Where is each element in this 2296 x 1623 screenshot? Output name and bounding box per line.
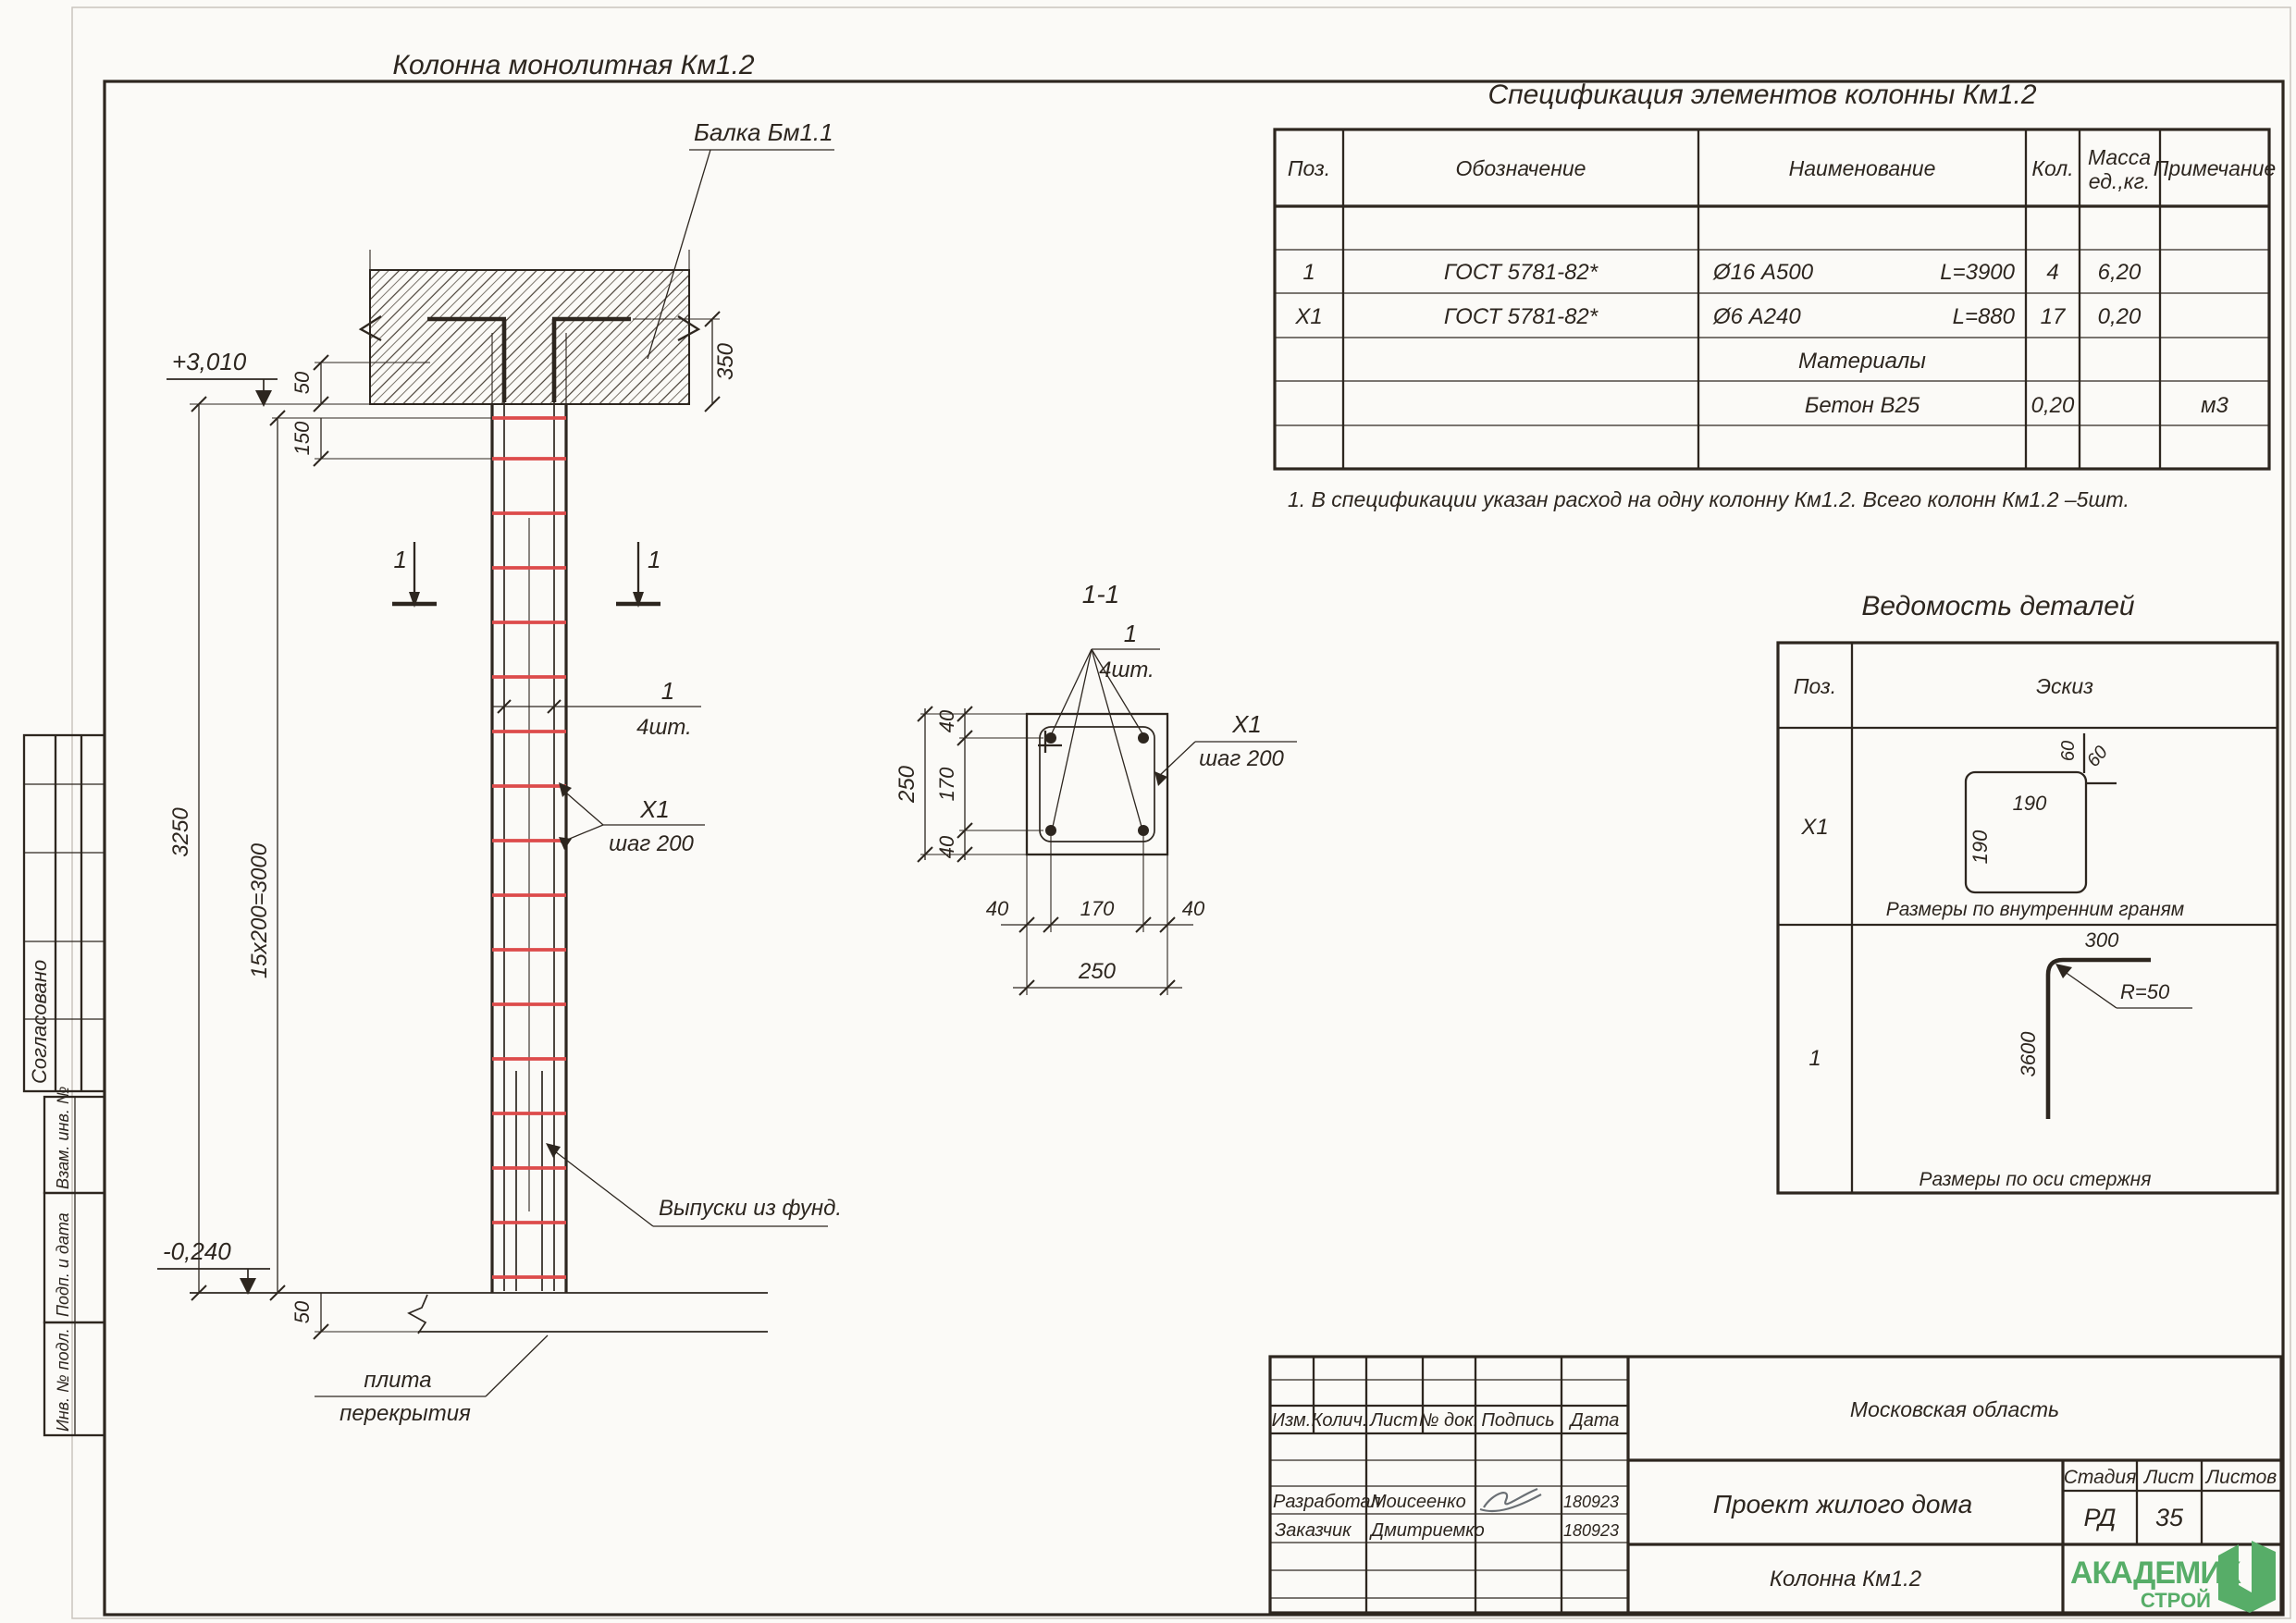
tb-row-customer: Заказчик Дмитриемко 180923 — [1275, 1520, 1619, 1541]
tb-col-list: Лист — [1368, 1410, 1418, 1431]
svg-text:6,20: 6,20 — [2098, 260, 2142, 285]
outlets-label: Выпуски из фунд. — [546, 1143, 842, 1226]
spec-col-mass-1: Масса — [2088, 145, 2151, 169]
signature — [1480, 1489, 1541, 1511]
dim-40-v-top: 40 — [935, 709, 958, 732]
sketch-stirrup: 190 190 60 60 — [1966, 733, 2117, 892]
level-top: +3,010 — [172, 348, 247, 375]
svg-text:ГОСТ 5781-82*: ГОСТ 5781-82* — [1444, 260, 1599, 285]
side-label-replace-inv: Взам. инв. № — [54, 1087, 72, 1189]
front-view-title: Колонна монолитная Км1.2 — [392, 50, 755, 80]
tb-listov-label: Листов — [2204, 1467, 2277, 1488]
section-stirrup — [1040, 727, 1154, 842]
svg-text:60: 60 — [2058, 741, 2079, 761]
title-block: Изм. Колич. Лист № док. Подпись Дата Раз… — [1270, 1357, 2281, 1613]
slab-label: плита перекрытия — [315, 1335, 548, 1426]
blueprint-canvas: Согласовано Взам. инв. № Подп. и дата Ин… — [0, 0, 2296, 1623]
tb-col-date: Дата — [1569, 1410, 1620, 1431]
svg-text:Х1: Х1 — [639, 795, 670, 823]
tb-list-label: Лист — [2142, 1467, 2194, 1488]
dim-250-v: 250 — [895, 765, 920, 804]
dim-stirrup-step: 15x200=3000 — [247, 842, 272, 978]
svg-text:60: 60 — [2083, 743, 2112, 771]
spec-row-2: Х1 ГОСТ 5781-82* Ø6 А240 L=880 17 0,20 — [1294, 304, 2142, 329]
spec-col-mass-2: ед.,кг. — [2089, 169, 2151, 193]
svg-text:L=880: L=880 — [1953, 304, 2016, 329]
svg-text:17: 17 — [2041, 304, 2067, 329]
dim-250-h: 250 — [1078, 959, 1117, 984]
tb-row-developer: Разработал Моисеенко 180923 — [1273, 1489, 1619, 1512]
svg-text:Х1: Х1 — [1294, 304, 1322, 329]
svg-text:Ø6 А240: Ø6 А240 — [1712, 304, 1801, 329]
svg-text:0,20: 0,20 — [2031, 393, 2075, 418]
dim-40-v-bot: 40 — [935, 835, 958, 858]
tb-col-sign: Подпись — [1481, 1410, 1554, 1431]
details-table: Ведомость деталей Поз. Эскиз Х1 190 190 … — [1778, 591, 2277, 1193]
svg-text:Ø16 А500: Ø16 А500 — [1712, 260, 1814, 285]
side-strip: Согласовано Взам. инв. № Подп. и дата Ин… — [24, 735, 105, 1435]
svg-text:4: 4 — [2046, 260, 2058, 285]
company-logo: АКАДЕМИК СТРОЙ — [2070, 1541, 2276, 1613]
svg-text:R=50: R=50 — [2120, 980, 2170, 1003]
svg-text:L=3900: L=3900 — [1940, 260, 2015, 285]
spec-table: Спецификация элементов колонны Км1.2 Поз… — [1275, 80, 2276, 511]
details-row-1-pos: 1 — [1808, 1046, 1821, 1071]
section-view: 1-1 1 4шт. Х1 шаг 200 250 40 170 40 — [895, 580, 1297, 995]
stirrup-callout-front: Х1 шаг 200 — [559, 782, 705, 856]
svg-text:1: 1 — [1124, 620, 1137, 647]
svg-text:1: 1 — [1302, 260, 1315, 285]
spec-row-concrete: Бетон В25 0,20 м3 — [1805, 393, 2229, 418]
side-label-sign-date: Подп. и дата — [54, 1212, 72, 1317]
dim-170-v: 170 — [935, 767, 958, 801]
svg-text:Выпуски из фунд.: Выпуски из фунд. — [659, 1196, 842, 1221]
beam-section — [370, 270, 689, 404]
svg-text:180923: 180923 — [1563, 1493, 1619, 1511]
svg-text:180923: 180923 — [1563, 1521, 1619, 1540]
logo-text-bottom: СТРОЙ — [2141, 1589, 2211, 1612]
stirrup-callout-section: Х1 шаг 200 — [1154, 710, 1297, 786]
sketch-bent-bar: 300 R=50 3600 — [2017, 928, 2192, 1119]
front-view: Колонна монолитная Км1.2 Балка Бм1.1 — [157, 50, 842, 1426]
svg-text:перекрытия: перекрытия — [339, 1401, 471, 1426]
svg-text:Разработал: Разработал — [1273, 1492, 1381, 1512]
svg-text:Бетон В25: Бетон В25 — [1805, 393, 1920, 418]
svg-text:1: 1 — [648, 546, 660, 573]
drawing-sheet: Согласовано Взам. инв. № Подп. и дата Ин… — [0, 0, 2296, 1623]
svg-text:Моисеенко: Моисеенко — [1371, 1492, 1466, 1512]
section-title: 1-1 — [1082, 580, 1119, 609]
svg-text:1: 1 — [394, 546, 407, 573]
details-row-x1-caption: Размеры по внутренним граням — [1886, 899, 2184, 920]
spec-row-1: 1 ГОСТ 5781-82* Ø16 А500 L=3900 4 6,20 — [1302, 260, 2142, 285]
logo-house-icon — [2218, 1541, 2276, 1613]
tb-col-kol: Колич. — [1312, 1410, 1368, 1431]
dim-40-h-right: 40 — [1182, 897, 1205, 920]
svg-text:плита: плита — [364, 1368, 431, 1393]
dim-170-h: 170 — [1080, 897, 1115, 920]
beam-label: Балка Бм1.1 — [694, 118, 833, 146]
dim-50-top: 50 — [290, 371, 314, 394]
tb-object: Колонна Км1.2 — [1770, 1567, 1921, 1592]
svg-text:0,20: 0,20 — [2098, 304, 2142, 329]
spec-note: 1. В спецификации указан расход на одну … — [1288, 487, 2129, 511]
svg-text:4шт.: 4шт. — [1099, 658, 1154, 682]
tb-col-izm: Изм. — [1272, 1410, 1312, 1431]
svg-text:шаг 200: шаг 200 — [609, 831, 694, 856]
svg-text:м3: м3 — [2201, 393, 2228, 418]
side-label-approved: Согласовано — [28, 960, 51, 1084]
tb-stage-label: Стадия — [2064, 1467, 2137, 1488]
dim-50-bottom: 50 — [290, 1300, 314, 1323]
spec-col-note: Примечание — [2154, 156, 2276, 180]
svg-text:Заказчик: Заказчик — [1275, 1520, 1352, 1541]
svg-text:1: 1 — [661, 677, 674, 705]
tb-stage-value: РД — [2084, 1504, 2117, 1531]
tb-region: Московская область — [1850, 1397, 2059, 1421]
details-col-sketch: Эскиз — [2036, 674, 2093, 698]
details-col-pos: Поз. — [1794, 674, 1836, 698]
bar-callout-section: 1 4шт. — [1051, 620, 1160, 827]
dim-40-h-left: 40 — [986, 897, 1009, 920]
spec-col-pos: Поз. — [1288, 156, 1330, 180]
details-row-x1-pos: Х1 — [1800, 815, 1828, 840]
svg-text:300: 300 — [2085, 928, 2119, 952]
svg-text:шаг 200: шаг 200 — [1199, 746, 1284, 771]
spec-col-qty: Кол. — [2031, 156, 2073, 180]
spec-table-title: Спецификация элементов колонны Км1.2 — [1487, 80, 2036, 110]
dim-total-height: 3250 — [168, 807, 193, 857]
svg-text:Х1: Х1 — [1231, 710, 1262, 738]
corner-bar — [1045, 825, 1056, 836]
svg-text:3600: 3600 — [2017, 1031, 2040, 1077]
corner-bar — [1138, 825, 1149, 836]
tb-sheet-value: 35 — [2155, 1504, 2184, 1531]
slab-break — [409, 1295, 427, 1334]
spec-col-desig: Обозначение — [1456, 156, 1586, 180]
logo-text-top: АКАДЕМИК — [2070, 1555, 2241, 1591]
section-mark-right: 1 — [616, 542, 660, 608]
side-label-inv-orig: Инв. № подл. — [54, 1328, 72, 1432]
svg-text:Дмитриемко: Дмитриемко — [1369, 1520, 1485, 1541]
section-mark-left: 1 — [392, 542, 437, 608]
details-title: Ведомость деталей — [1861, 591, 2135, 621]
level-bottom: -0,240 — [163, 1237, 231, 1265]
svg-text:4шт.: 4шт. — [636, 715, 692, 740]
spec-row-materials: Материалы — [1798, 349, 1926, 374]
spec-col-name: Наименование — [1789, 156, 1936, 180]
svg-text:190: 190 — [2013, 792, 2047, 815]
dim-150: 150 — [290, 421, 314, 455]
svg-text:190: 190 — [1969, 830, 1992, 864]
tb-col-doc: № док. — [1419, 1410, 1478, 1431]
tb-project: Проект жилого дома — [1713, 1490, 1973, 1518]
dim-350: 350 — [713, 342, 738, 380]
details-row-1-caption: Размеры по оси стержня — [1920, 1169, 2152, 1190]
svg-text:ГОСТ 5781-82*: ГОСТ 5781-82* — [1444, 304, 1599, 329]
